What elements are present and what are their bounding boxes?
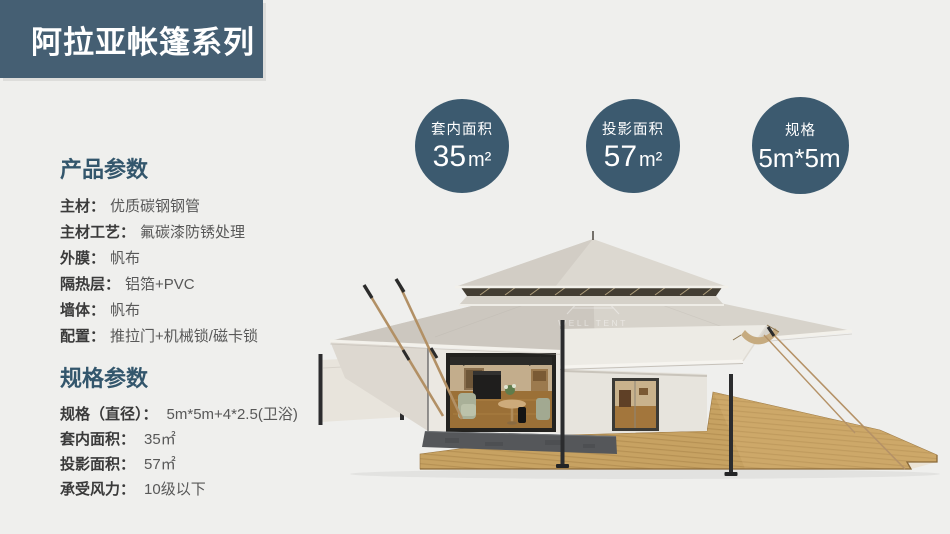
badge-projection-area: 投影面积 57m² bbox=[586, 99, 680, 193]
tent-right-wall bbox=[563, 369, 707, 434]
window-interior-scene bbox=[450, 357, 552, 428]
badge-size: 规格 5m*5m bbox=[752, 97, 849, 194]
series-title-banner: 阿拉亚帐篷系列 bbox=[0, 0, 263, 78]
badge-interior-area-value: 35m² bbox=[433, 142, 492, 175]
tent-product-image: WELL TENT bbox=[315, 228, 950, 528]
ground-shadow bbox=[350, 469, 940, 479]
badge-interior-area: 套内面积 35m² bbox=[415, 99, 509, 193]
product-params-heading: 产品参数 bbox=[60, 152, 390, 184]
badge-size-label: 规格 bbox=[785, 119, 816, 140]
deck-awning bbox=[560, 325, 767, 370]
badge-projection-area-value: 57m² bbox=[604, 142, 663, 175]
badge-interior-area-label: 套内面积 bbox=[431, 118, 493, 139]
page: 阿拉亚帐篷系列 套内面积 35m² 投影面积 57m² 规格 5m*5m 产品参… bbox=[0, 0, 950, 534]
param-row-material: 主材：优质碳钢钢管 bbox=[60, 192, 390, 218]
badge-projection-area-label: 投影面积 bbox=[602, 118, 664, 139]
watermark-text: WELL TENT bbox=[558, 318, 628, 328]
pagoda-top-roof bbox=[455, 231, 728, 305]
badge-size-value: 5m*5m bbox=[758, 143, 842, 173]
series-title: 阿拉亚帐篷系列 bbox=[31, 17, 255, 62]
